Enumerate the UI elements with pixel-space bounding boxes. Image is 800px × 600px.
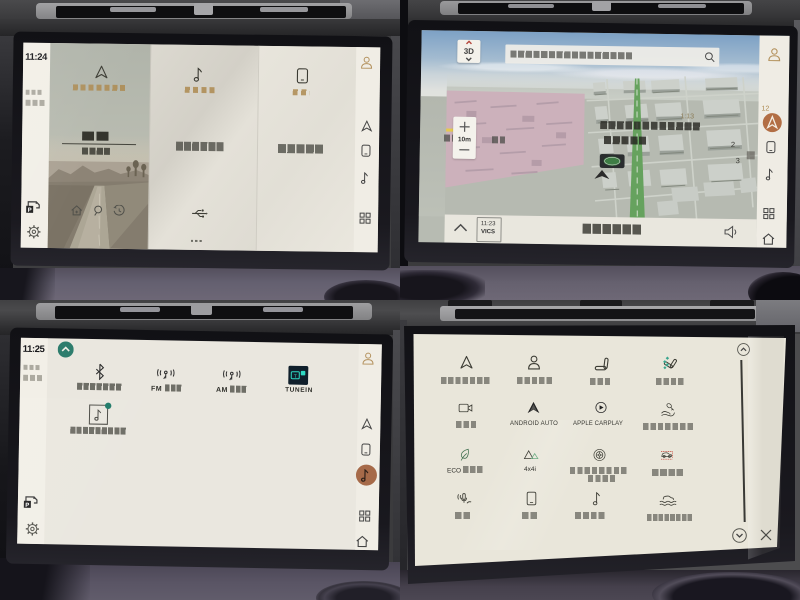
svg-text:3D: 3D [464,47,475,56]
svg-text:T: T [294,374,297,380]
svg-text:10m: 10m [458,136,471,143]
